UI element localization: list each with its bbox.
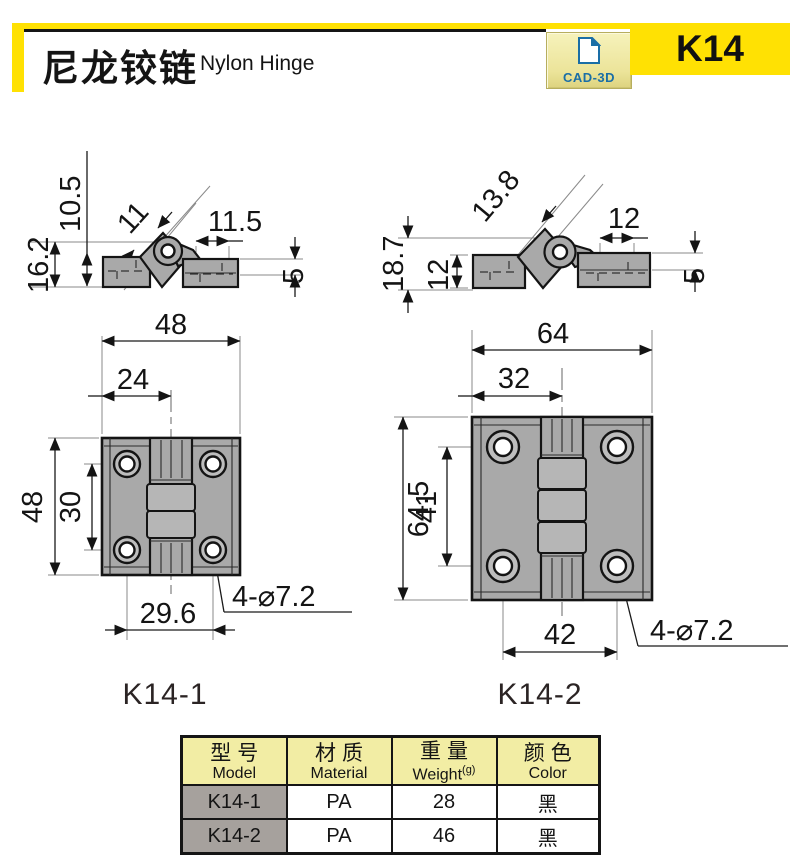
hinge2-pin-hole [553,245,567,259]
dim-label-48-height: 48 [17,491,49,523]
cad-3d-label: CAD-3D [563,70,615,85]
page-title: 尼龙铰链 [42,38,198,92]
hinge1-screw-hole [206,457,221,472]
table-row: K14-1 PA 28 黑 [182,785,600,819]
cell-model: K14-2 [182,819,287,854]
technical-drawings: 16.2 10.5 11 11.5 5 [0,110,790,735]
dim-label-11: 11 [111,196,155,240]
dim-label-holes-1: 4-⌀7.2 [232,581,316,613]
hinge1-screw-hole [120,543,135,558]
dim-label-32: 32 [498,363,530,395]
hinge2-screw-hole [494,557,512,575]
yellow-left-strip [12,23,24,92]
side-view-k14-2: 18.7 12 13.8 12 5 [378,164,711,313]
dim-label-29-6: 29.6 [140,598,196,630]
dim-label-64: 64 [537,318,569,350]
cell-material: PA [287,819,392,854]
dim-label-48-width: 48 [155,309,187,341]
product-code-badge: K14 [630,23,790,75]
header-divider [24,29,546,32]
dim-label-10-5: 10.5 [55,176,87,232]
cell-color: 黑 [497,785,600,819]
side-view-k14-1: 16.2 10.5 11 11.5 5 [23,151,310,297]
dim-label-5b: 5 [679,268,711,284]
dim-label-12-left: 12 [423,259,455,291]
spec-table: 型号 Model 材质 Material 重量 Weight(g) 颜色 Col… [180,735,601,855]
col-header-weight: 重量 Weight(g) [392,737,497,786]
cell-weight: 28 [392,785,497,819]
front-view-k14-1: 48 24 48 30 29.6 4-⌀7.2 [17,309,352,640]
weight-unit: (g) [462,764,475,776]
cell-model: K14-1 [182,785,287,819]
dim-label-16-2: 16.2 [23,237,55,293]
hinge2-screw-hole [494,438,512,456]
cell-weight: 46 [392,819,497,854]
dim-label-13-8: 13.8 [466,164,527,228]
page-subtitle: Nylon Hinge [200,52,314,76]
cad-document-icon [577,37,601,69]
col-header-material: 材质 Material [287,737,392,786]
hinge2-screw-hole [608,557,626,575]
dim-label-42: 42 [544,619,576,651]
dim-label-18-7: 18.7 [378,236,410,292]
dim-label-24: 24 [117,364,149,396]
front-view-k14-2: 64 32 64.5 41 42 4-⌀7.2 [394,318,788,660]
table-row: K14-2 PA 46 黑 [182,819,600,854]
product-code: K14 [676,28,744,70]
hinge1-pin-hole [162,245,175,258]
spec-table-header-row: 型号 Model 材质 Material 重量 Weight(g) 颜色 Col… [182,737,600,786]
catalog-page: 尼龙铰链 Nylon Hinge CAD-3D K14 [0,0,790,867]
dim-label-30: 30 [55,491,87,523]
caption-k14-1: K14-1 [95,678,235,712]
cad-3d-badge[interactable]: CAD-3D [546,32,632,89]
hinge2-screw-hole [608,438,626,456]
hinge1-screw-hole [120,457,135,472]
caption-k14-2: K14-2 [470,678,610,712]
cell-color: 黑 [497,819,600,854]
dim-label-11-5: 11.5 [208,206,262,238]
dim-label-5a: 5 [278,268,310,284]
col-header-model: 型号 Model [182,737,287,786]
dim-label-12-right: 12 [608,203,640,235]
dim-label-holes-2: 4-⌀7.2 [650,615,734,647]
cell-material: PA [287,785,392,819]
hinge1-screw-hole [206,543,221,558]
col-header-color: 颜色 Color [497,737,600,786]
dim-label-41: 41 [411,491,443,523]
